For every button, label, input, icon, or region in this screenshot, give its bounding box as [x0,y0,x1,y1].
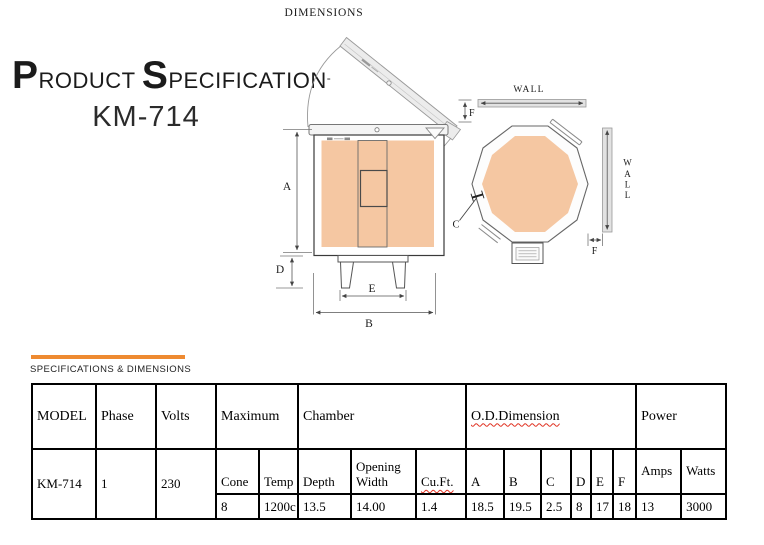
wall-top-label: WALL [513,85,544,95]
kiln-side-view [307,38,460,289]
dim-e-label: E [368,283,375,295]
header-volts: Volts [156,384,216,449]
cell-b: 19.5 [504,494,541,519]
lid-swing-arc [307,42,346,127]
cell-c: 2.5 [541,494,571,519]
cell-watts: 3000 [681,494,726,519]
subheader-depth: Depth [298,449,351,494]
control-box [361,171,388,207]
stand-top [338,256,408,263]
header-model: MODEL [32,384,96,449]
spec-sheet-page: DIMENSIONS PRODUCT SPECIFICATION- KM-714 [0,0,764,545]
svg-text:L: L [625,190,631,200]
cell-depth: 13.5 [298,494,351,519]
subheader-cone: Cone [216,449,259,494]
title-initial-s: S [142,54,169,97]
dimension-a: A [283,130,312,253]
dim-f-top-label: F [469,108,475,119]
header-od-dimension: O.D.Dimension [466,384,636,449]
nameplate-mark [327,138,333,141]
cell-cuft: 1.4 [416,494,466,519]
cell-opening-width: 14.00 [351,494,416,519]
cell-amps: 13 [636,494,681,519]
wall-right-label: W A L L [623,158,632,201]
header-phase: Phase [96,384,156,449]
dim-d-label: D [276,264,284,276]
cell-volts: 230 [156,449,216,519]
spec-table: MODEL Phase Volts Maximum Chamber O.D.Di… [31,383,727,520]
dimension-b: B [314,273,436,330]
svg-text:W: W [623,158,632,168]
lid-hinge-hole [387,81,391,85]
stand-leg-right [393,262,406,288]
subheader-d: D [571,449,591,494]
section-heading: SPECIFICATIONS & DIMENSIONS [30,364,191,375]
model-number: KM-714 [12,101,280,134]
svg-text:A: A [624,169,631,179]
header-power: Power [636,384,726,449]
cell-a: 18.5 [466,494,504,519]
subheader-e: E [591,449,613,494]
dimension-d: D [276,256,303,288]
kiln-dimensions-drawing: A D E B WALL [268,28,668,343]
subheader-a: A [466,449,504,494]
subheader-cuft: Cu.Ft. [416,449,466,494]
title-block: PRODUCT SPECIFICATION- KM-714 [12,54,280,134]
subheader-opening-width: Opening Width [351,449,416,494]
subheader-b: B [504,449,541,494]
cell-temp: 1200c [259,494,298,519]
title-initial-p: P [12,54,39,97]
cell-model: KM-714 [32,449,96,519]
subheader-c: C [541,449,571,494]
dimension-f-right: F [588,234,603,258]
table-subheader-row: KM-714 1 230 Cone Temp Depth Opening Wid… [32,449,726,494]
section-accent-bar [31,355,185,359]
cell-f: 18 [613,494,636,519]
dim-c-label: C [452,220,459,231]
cell-d: 8 [571,494,591,519]
dim-f-right-label: F [592,246,598,257]
subheader-watts: Watts [681,449,726,494]
table-header-row: MODEL Phase Volts Maximum Chamber O.D.Di… [32,384,726,449]
cell-phase: 1 [96,449,156,519]
cell-e: 17 [591,494,613,519]
subheader-temp: Temp [259,449,298,494]
kiln-top-view: WALL F [452,85,632,264]
header-maximum: Maximum [216,384,298,449]
dimension-f-top: F [459,100,476,122]
dim-b-label: B [365,318,373,330]
title-rest-roduct: RODUCT [39,68,142,93]
subheader-f: F [613,449,636,494]
rim-hinge-pin [375,128,379,132]
stand-leg-left [341,262,354,288]
page-title: PRODUCT SPECIFICATION- [12,54,280,98]
svg-text:L: L [625,180,631,190]
dim-a-label: A [283,181,292,193]
cell-cone: 8 [216,494,259,519]
header-chamber: Chamber [298,384,466,449]
subheader-amps: Amps [636,449,681,494]
dimensions-heading: DIMENSIONS [263,7,385,19]
